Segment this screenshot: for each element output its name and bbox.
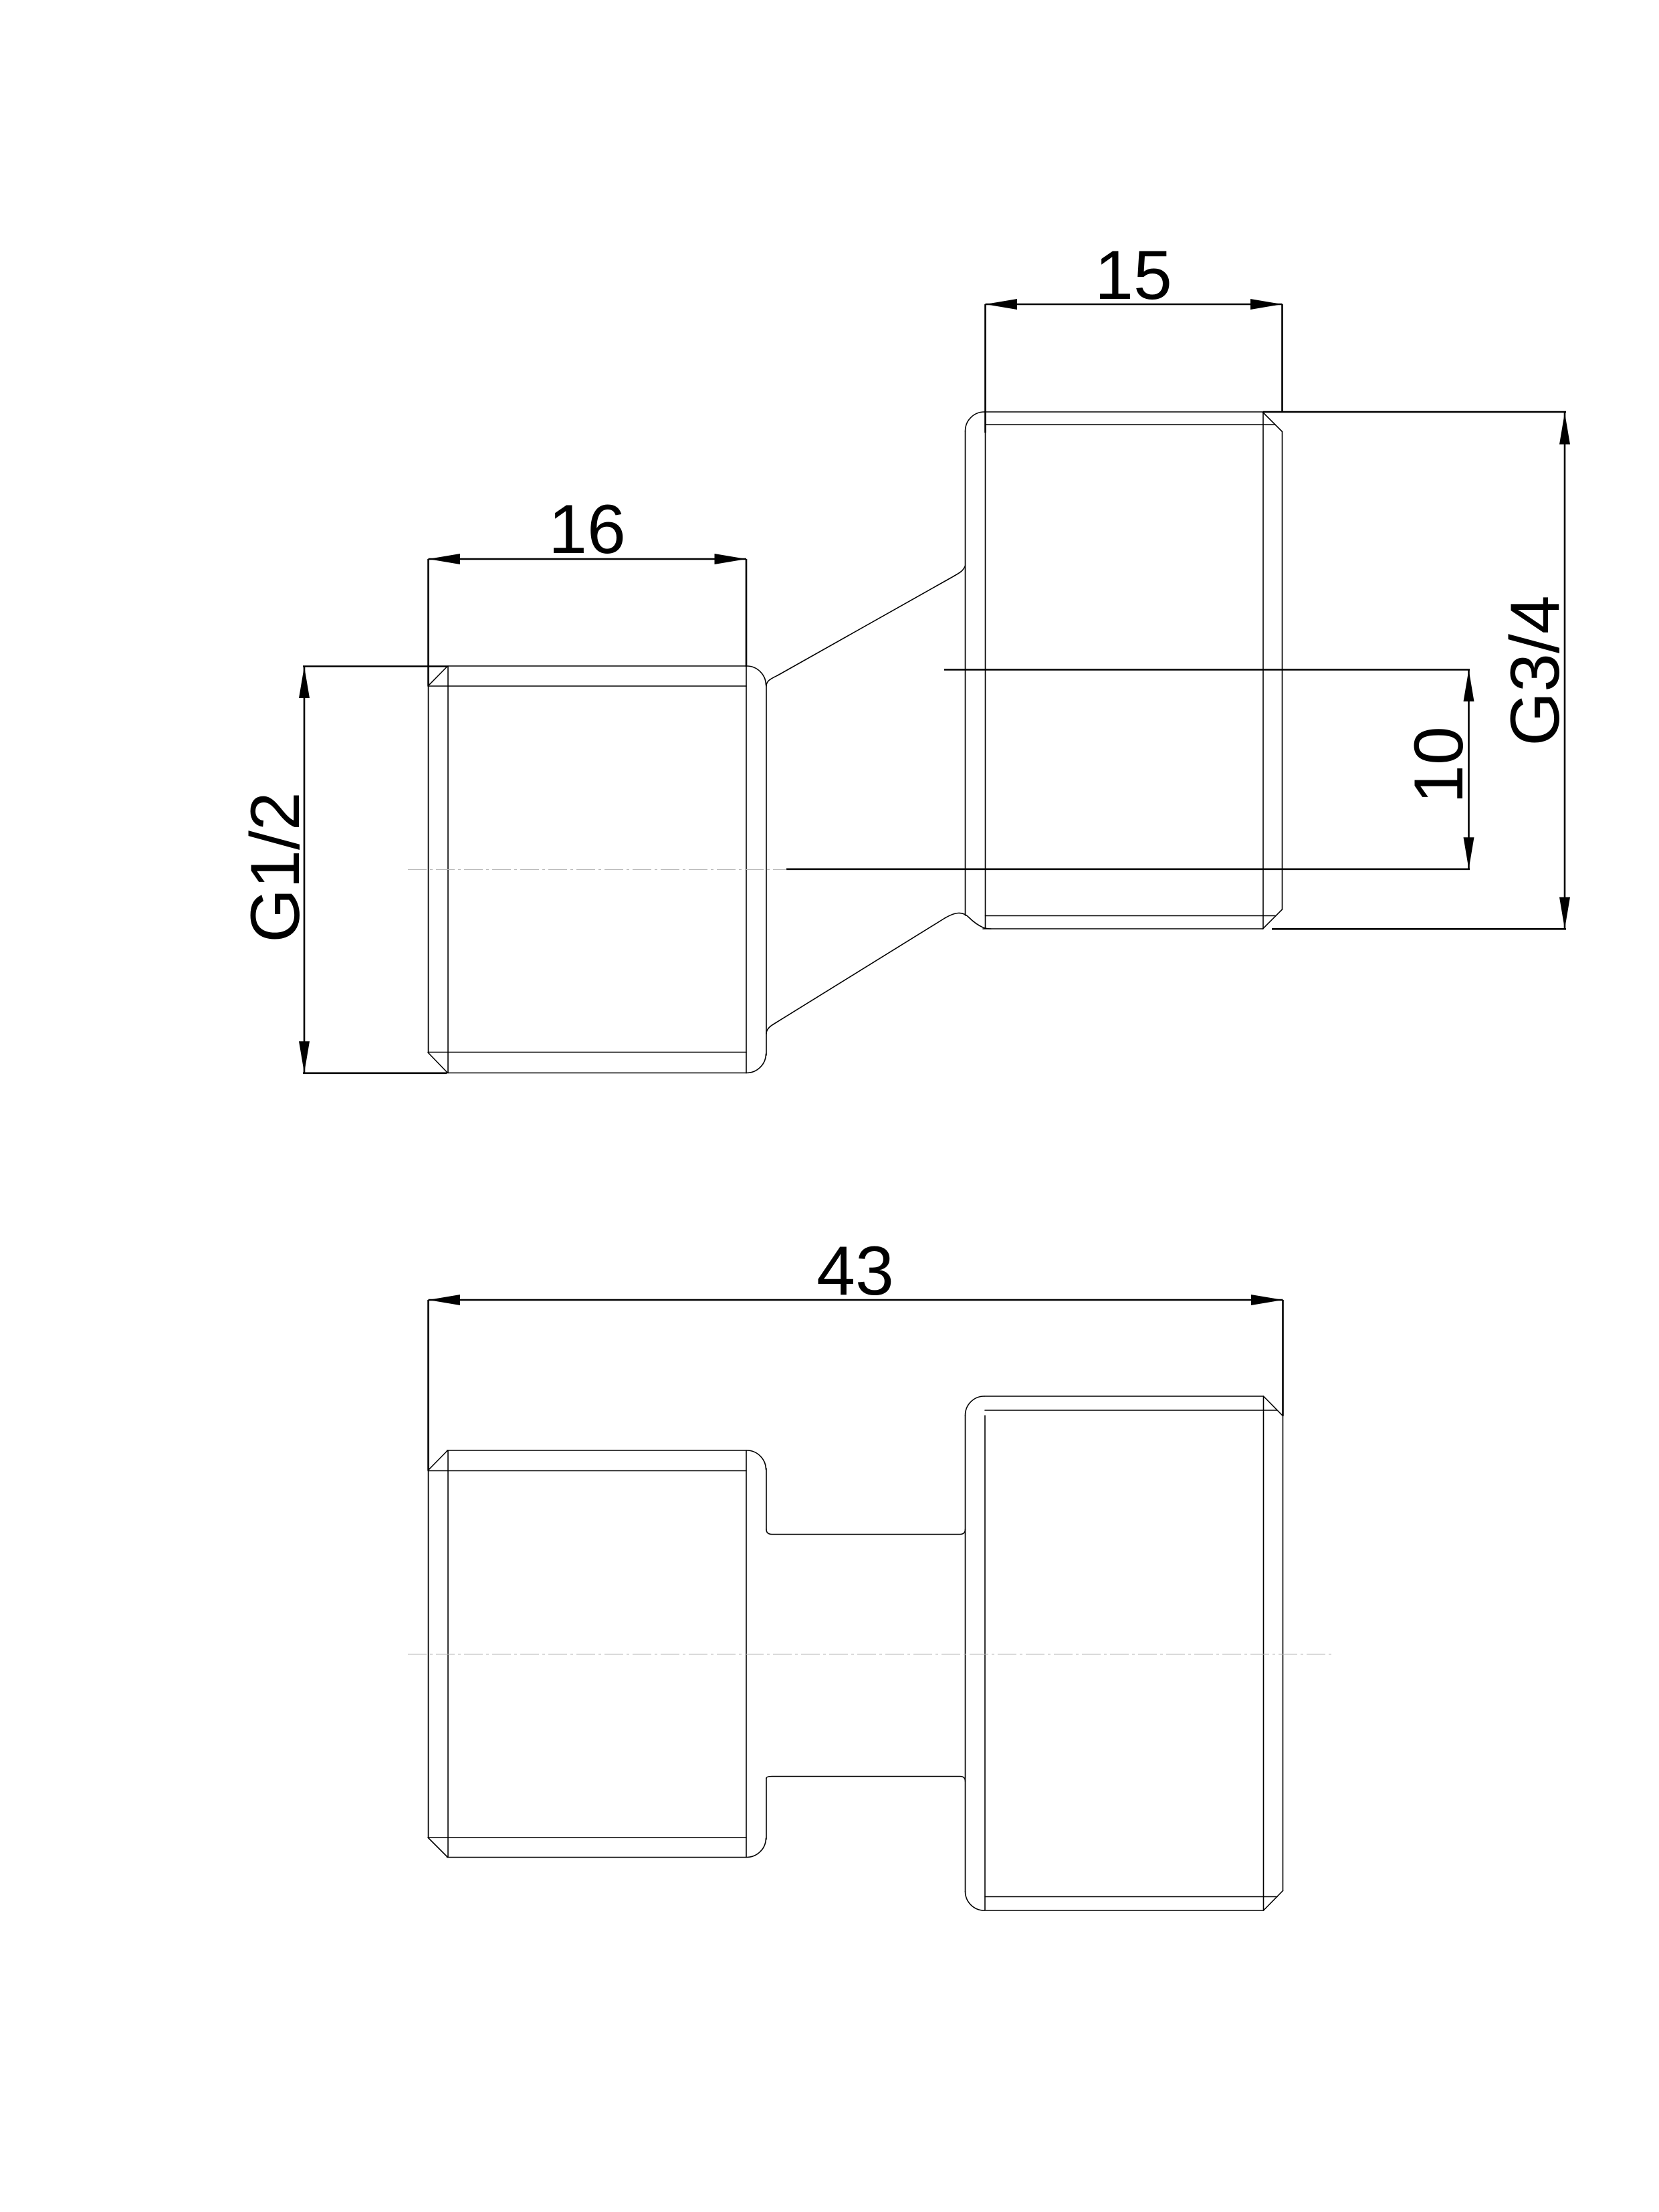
svg-text:G3/4: G3/4 — [1497, 595, 1574, 746]
svg-text:G1/2: G1/2 — [237, 792, 314, 942]
svg-text:43: 43 — [816, 1232, 894, 1310]
svg-text:15: 15 — [1095, 237, 1172, 314]
svg-text:16: 16 — [548, 491, 626, 568]
svg-text:10: 10 — [1400, 726, 1478, 804]
